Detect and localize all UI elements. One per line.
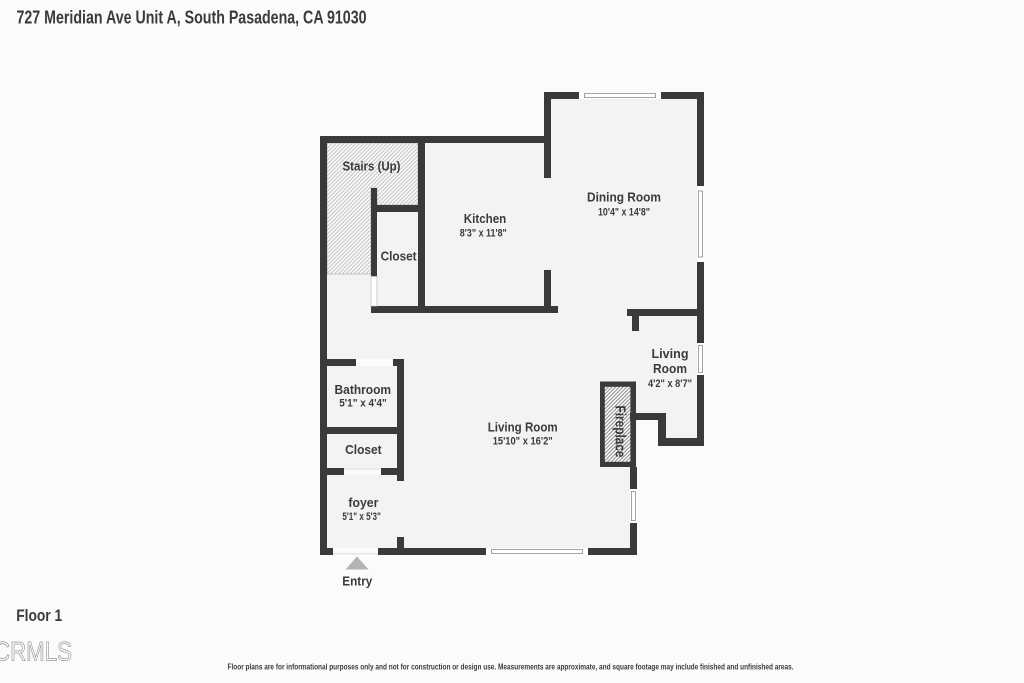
svg-text:Bathroom: Bathroom: [335, 382, 392, 397]
svg-text:727 Meridian Ave Unit A, South: 727 Meridian Ave Unit A, South Pasadena,…: [17, 8, 367, 28]
svg-text:Floor 1: Floor 1: [16, 606, 62, 625]
svg-text:Stairs (Up): Stairs (Up): [343, 159, 401, 174]
svg-text:foyer: foyer: [348, 495, 378, 510]
svg-text:Fireplace: Fireplace: [612, 406, 629, 458]
svg-text:Dining Room: Dining Room: [587, 189, 661, 204]
svg-text:8'3" x 11'8": 8'3" x 11'8": [460, 227, 507, 239]
svg-text:Entry: Entry: [342, 574, 373, 589]
svg-text:4'2" x 8'7": 4'2" x 8'7": [648, 378, 692, 390]
svg-text:Closet: Closet: [345, 442, 382, 457]
svg-text:Living: Living: [652, 346, 689, 361]
svg-text:CRMLS: CRMLS: [0, 637, 72, 667]
svg-text:Closet: Closet: [381, 248, 418, 263]
svg-text:Living Room: Living Room: [488, 419, 558, 434]
svg-text:5'1" x 5'3": 5'1" x 5'3": [342, 511, 381, 523]
svg-text:Kitchen: Kitchen: [464, 211, 507, 226]
svg-text:15'10" x 16'2": 15'10" x 16'2": [493, 436, 553, 448]
svg-text:Floor plans are for informatio: Floor plans are for informational purpos…: [228, 662, 794, 672]
svg-text:5'1" x 4'4": 5'1" x 4'4": [339, 397, 387, 409]
svg-text:10'4" x 14'8": 10'4" x 14'8": [598, 206, 650, 218]
svg-text:Room: Room: [653, 361, 687, 376]
